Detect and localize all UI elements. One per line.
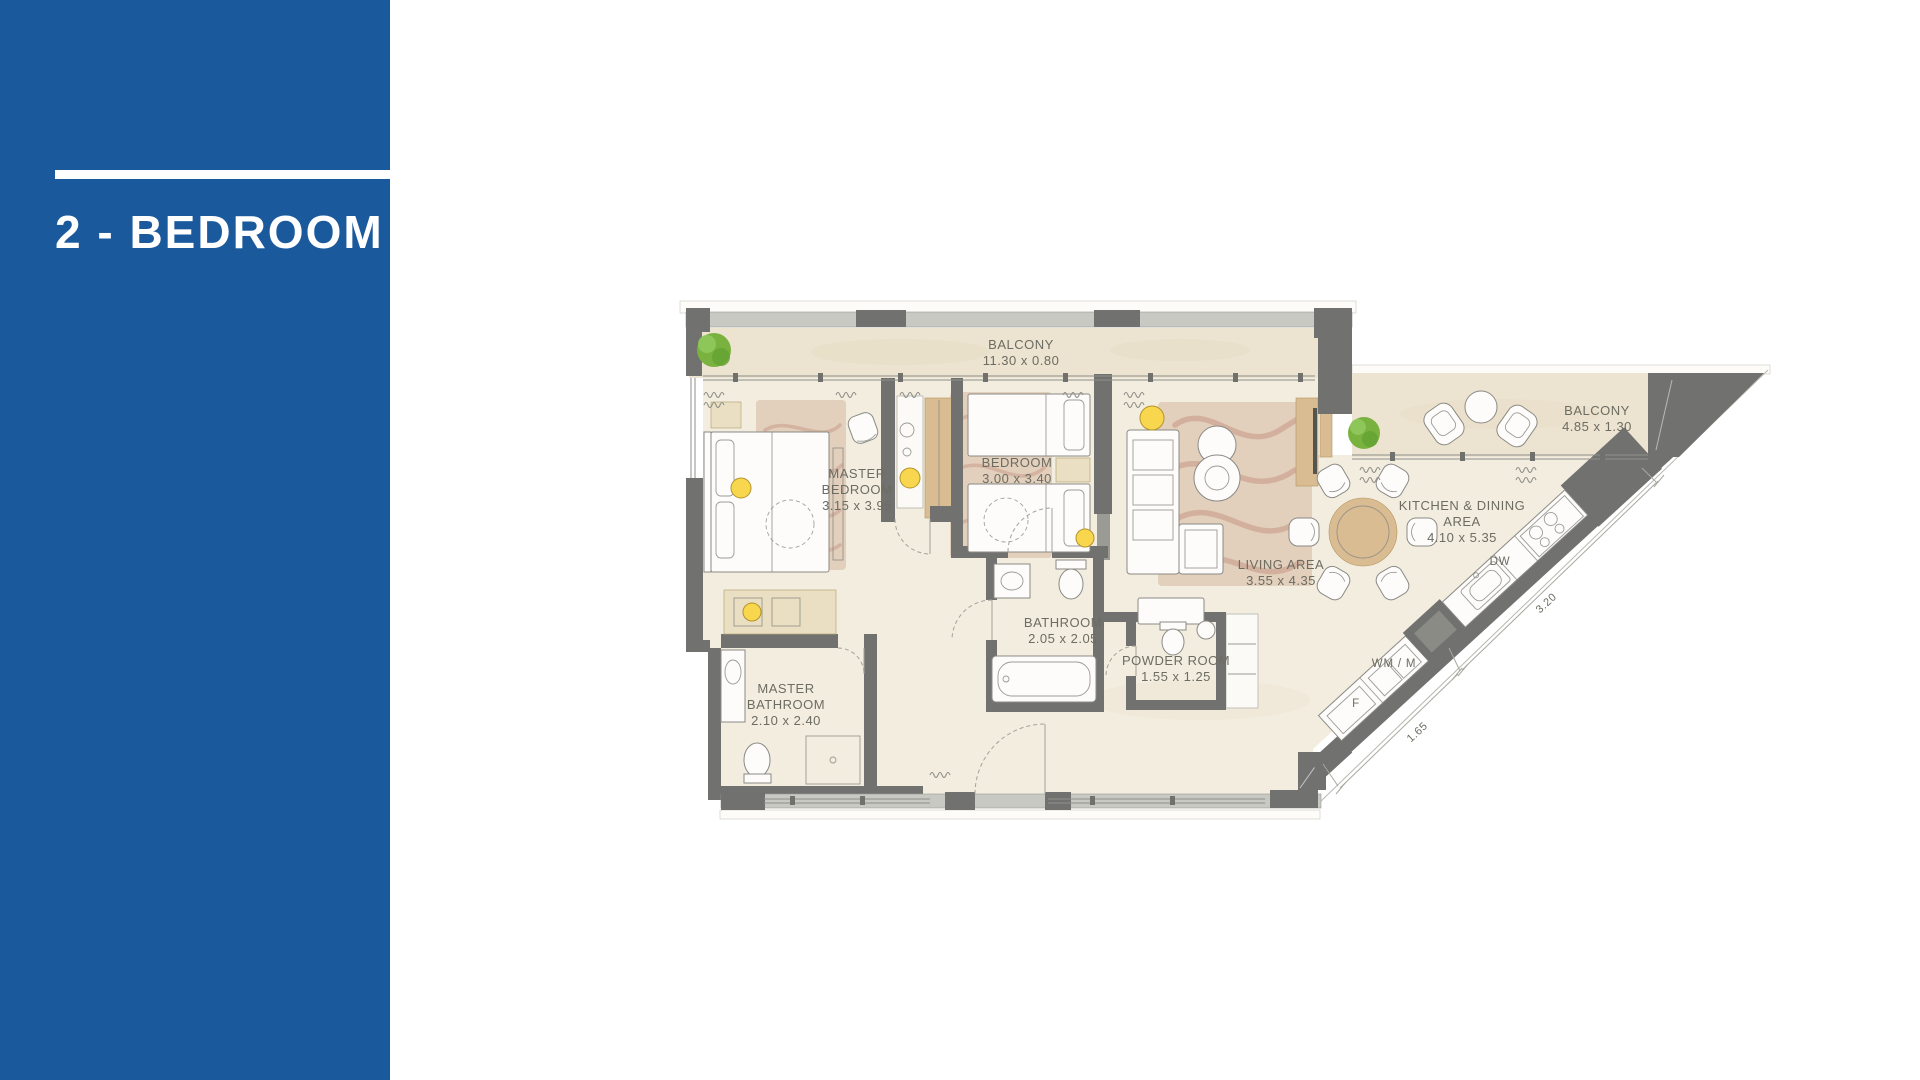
floorplan-drawing [0,0,1920,1080]
coffee-table [1194,455,1240,501]
light-icon [1076,529,1094,547]
twin-bed-1 [968,394,1090,456]
room-name: POWDER ROOM [1101,653,1251,669]
appliance-label-dishwasher: DW [1490,555,1511,569]
balcony-table [1465,391,1497,423]
room-dims: 3.55 x 4.35 [1206,573,1356,589]
light-icon [1140,406,1164,430]
room-name: MASTER BATHROOM [731,681,841,713]
master-bed-headboard [704,432,711,572]
room-dims: 4.85 x 1.30 [1532,419,1662,435]
floorplan-canvas: BALCONY 11.30 x 0.80 MASTER BEDROOM 3.15… [0,0,1920,1080]
room-name: BALCONY [1532,403,1662,419]
sofa [1127,430,1179,574]
room-label-master-bathroom: MASTER BATHROOM 2.10 x 2.40 [731,681,841,729]
room-dims: 11.30 x 0.80 [936,353,1106,369]
room-label-powder-room: POWDER ROOM 1.55 x 1.25 [1101,653,1251,685]
room-dims: 4.10 x 5.35 [1397,530,1527,546]
master-bath-walls [708,648,721,794]
room-name: BEDROOM [952,455,1082,471]
room-dims: 2.10 x 2.40 [731,713,841,729]
toilet [1162,629,1184,655]
tv [1313,408,1317,474]
basin [1197,621,1215,639]
nightstand [711,402,741,428]
room-name: BATHROOM [998,615,1128,631]
room-name: LIVING AREA [1206,557,1356,573]
twin-bed-2 [968,484,1090,552]
room-dims: 2.05 x 2.05 [998,631,1128,647]
light-icon [743,603,761,621]
room-name: BALCONY [936,337,1106,353]
appliance-label-washer: WM / M [1372,657,1416,671]
dresser [724,590,836,634]
room-dims: 3.00 x 3.40 [952,471,1082,487]
sink-vanity [994,564,1030,598]
bedroom-right-wall [1094,374,1112,514]
right-exterior-wall [1318,310,1352,414]
room-dims: 1.55 x 1.25 [1101,669,1251,685]
bottom-exterior-wall [721,794,1321,808]
plant-icon [1348,417,1380,449]
appliance-label-fridge: F [1352,697,1360,711]
toilet [744,743,770,777]
top-exterior-wall [686,312,1352,327]
room-name: KITCHEN & DINING AREA [1397,498,1527,530]
toilet [1059,569,1083,599]
room-label-master-bedroom: MASTER BEDROOM 3.15 x 3.95 [807,466,907,514]
console-bench [1138,598,1204,624]
room-label-balcony-right: BALCONY 4.85 x 1.30 [1532,403,1662,435]
room-label-kitchen-dining: KITCHEN & DINING AREA 4.10 x 5.35 [1397,498,1527,546]
room-label-bedroom: BEDROOM 3.00 x 3.40 [952,455,1082,487]
room-name: MASTER BEDROOM [807,466,907,498]
room-label-living-area: LIVING AREA 3.55 x 4.35 [1206,557,1356,589]
room-label-balcony-top: BALCONY 11.30 x 0.80 [936,337,1106,369]
room-label-bathroom: BATHROOM 2.05 x 2.05 [998,615,1128,647]
room-dims: 3.15 x 3.95 [807,498,907,514]
light-icon [731,478,751,498]
dining-table [1329,498,1397,566]
balcony-door-threshold [1320,412,1332,457]
plant-icon [697,333,731,367]
